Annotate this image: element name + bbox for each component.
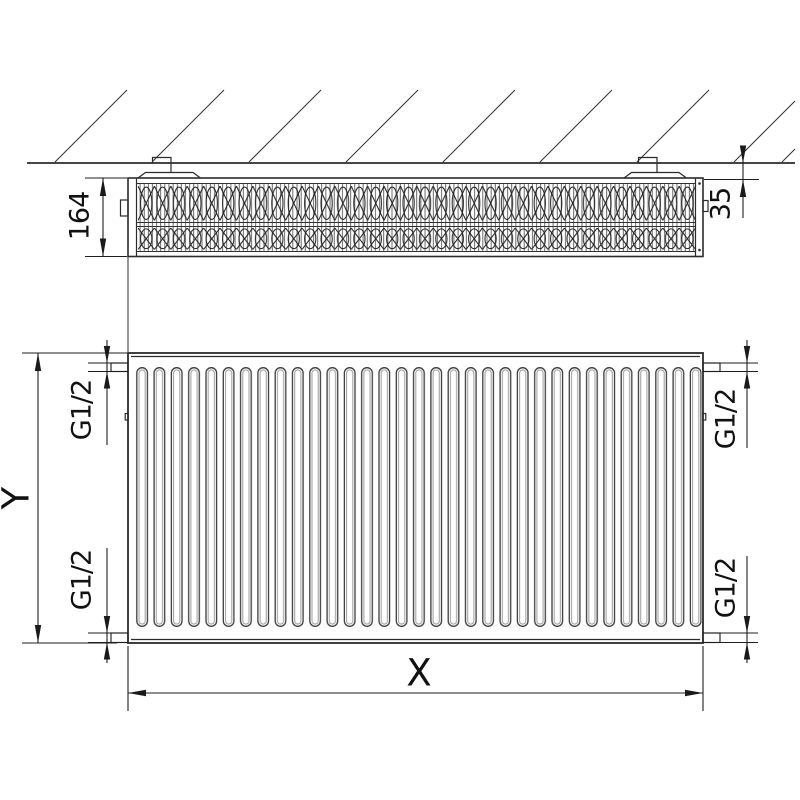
wall-bracket-right xyxy=(624,158,687,179)
connection-bottom-left xyxy=(111,633,128,643)
dimension-wall-clearance: 35 xyxy=(704,146,759,221)
dimension-connection-bottom-right: G1/2 xyxy=(703,556,758,663)
width-label: X xyxy=(406,652,431,695)
front-view xyxy=(111,353,720,643)
depth-label: 164 xyxy=(65,192,96,241)
connection-label-bottom-right: G1/2 xyxy=(711,558,742,618)
dimension-width: X xyxy=(128,646,703,711)
connection-bottom-right xyxy=(703,633,720,643)
connection-label-top-left: G1/2 xyxy=(67,380,98,440)
connection-label-bottom-left: G1/2 xyxy=(67,550,98,610)
panel-grooves xyxy=(134,367,702,627)
seam-mark-right xyxy=(703,414,706,421)
connection-top-left xyxy=(111,363,128,372)
dimension-connection-bottom-left: G1/2 xyxy=(67,548,129,663)
dimension-connection-top-left: G1/2 xyxy=(67,340,129,445)
wall-section xyxy=(27,90,795,163)
connection-top-right xyxy=(703,363,720,372)
wall-bracket-left xyxy=(138,158,201,179)
connection-label-top-right: G1/2 xyxy=(711,389,742,449)
dimension-connection-top-right: G1/2 xyxy=(703,340,758,449)
seam-mark-left xyxy=(125,414,128,421)
wall-clearance-label: 35 xyxy=(706,188,737,220)
side-tab-left xyxy=(121,200,129,216)
drawing-canvas: 164 35 Y X xyxy=(0,0,800,800)
dimension-depth: 164 xyxy=(65,178,128,257)
wall-hatching xyxy=(55,90,795,162)
height-label: Y xyxy=(0,486,38,510)
radiator-technical-drawing: 164 35 Y X xyxy=(0,0,800,800)
rivet-bottom-right xyxy=(698,249,701,252)
top-view xyxy=(121,158,709,257)
rivet-top-right xyxy=(698,182,701,185)
dimension-height: Y xyxy=(0,353,127,643)
convector-fins xyxy=(137,184,696,252)
